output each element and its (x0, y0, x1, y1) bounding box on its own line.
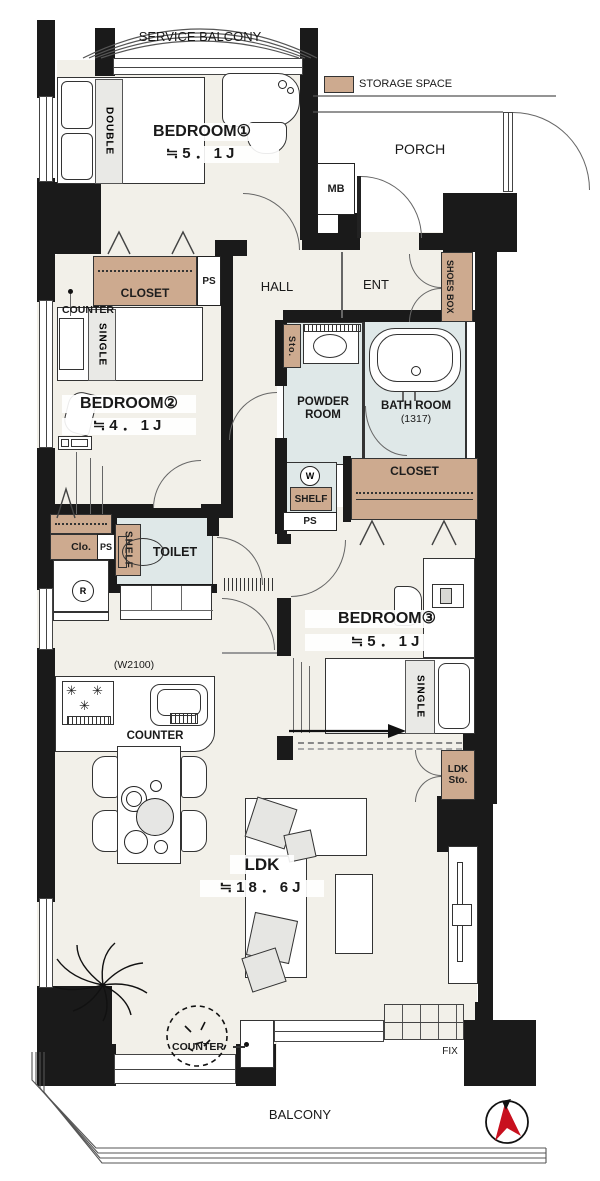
ps-label: PS (202, 276, 215, 287)
wall (95, 28, 115, 76)
curtain-line (293, 658, 294, 733)
dining-chair (92, 810, 118, 852)
clo-label: Clo. (71, 541, 91, 553)
ldk-storage-label: LDKSto. (448, 764, 469, 787)
dining-chair (181, 756, 207, 798)
closet-bedroom1: CLOSET (93, 256, 197, 306)
curtain-line (301, 662, 302, 733)
wall (37, 20, 55, 98)
powder-room-label: POWDERROOM (281, 396, 365, 422)
cup (154, 840, 168, 854)
window (39, 300, 53, 448)
counter-kitchen-label: COUNTER (100, 730, 210, 743)
wall (338, 213, 357, 235)
door-porch (513, 112, 590, 190)
door-entrance (361, 176, 422, 238)
floor-plan: CLOSET SHOES BOX Sto. CLOSET SHELF Clo. … (0, 0, 600, 1181)
double-bed-head: DOUBLE (95, 79, 123, 184)
refrigerator-shelf (53, 612, 109, 621)
dresser-knob (278, 80, 287, 89)
meter-box: MB (317, 163, 355, 215)
bedroom1-size: ≒5．1J (125, 146, 279, 163)
wall (277, 598, 291, 656)
pipe-space-2: PS (283, 512, 337, 531)
double-label: DOUBLE (104, 107, 115, 155)
compass-icon (486, 1099, 528, 1143)
window (39, 96, 53, 182)
hanger-line (102, 466, 103, 514)
bedroom3-size: ≒5．1J (305, 634, 469, 651)
counter-desk-bedroom2 (59, 318, 84, 370)
kitchen-width-label: (W2100) (102, 660, 166, 672)
wall (37, 178, 55, 302)
stove-burner-icon: ✳ (66, 684, 77, 699)
wall (478, 852, 493, 1004)
ps-label: PS (303, 516, 316, 527)
step-hatch (224, 578, 276, 591)
wall (464, 1020, 536, 1086)
wall (437, 796, 493, 852)
porch-boundary-lines (313, 96, 556, 112)
service-balcony-label: SERVICE BALCONY (120, 30, 280, 45)
pipe-space-1: PS (197, 256, 221, 306)
ent-step-line (341, 252, 343, 318)
sliding-partition (298, 742, 462, 744)
wall (277, 534, 291, 544)
bathtub-drain (411, 366, 421, 376)
hanger-line (90, 458, 91, 514)
refrigerator-mark: R (72, 580, 94, 602)
wall (419, 233, 445, 250)
shoes-box: SHOES BOX (441, 252, 473, 322)
bedroom2-name: BEDROOM② (62, 395, 196, 413)
plate (136, 798, 174, 836)
washing-machine: W (300, 466, 320, 486)
kitchen-cabinets (120, 585, 212, 620)
shelf-powder: SHELF (290, 487, 332, 511)
window (114, 1054, 236, 1084)
toilet-label: TOILET (140, 545, 210, 559)
fix-window (384, 1004, 464, 1040)
bed-pillow (438, 663, 470, 729)
shoes-box-label: SHOES BOX (445, 260, 469, 314)
porch-door-frame (503, 112, 513, 192)
window (274, 1020, 384, 1042)
window (39, 898, 53, 988)
counter-bedroom2-label: COUNTER (52, 305, 124, 317)
stove-grill (67, 716, 111, 725)
window (39, 588, 53, 650)
wall (55, 182, 101, 254)
ldk-size: ≒18．6J (200, 880, 324, 897)
ps-label: PS (100, 542, 112, 552)
washbasin-top-hatch (303, 324, 361, 332)
tv-board-item (452, 904, 472, 926)
storage-powder: Sto. (283, 324, 301, 368)
washbasin-bowl (313, 334, 347, 358)
wall (343, 456, 351, 522)
pipe-space-3: PS (97, 534, 115, 560)
dresser-knob (287, 87, 294, 94)
refrigerator-label: R (80, 586, 87, 596)
bed-pillow (61, 133, 93, 180)
single-bed-head: SINGLE (405, 660, 435, 734)
wall (221, 255, 233, 506)
counter-balcony-label: COUNTER (162, 1042, 234, 1054)
closet-bedroom3: CLOSET (351, 458, 478, 520)
wall (107, 508, 219, 518)
wall (302, 233, 360, 250)
bedroom1-name: BEDROOM① (125, 123, 279, 141)
bath-size-label: (1317) (367, 414, 465, 426)
sliding-partition (298, 748, 462, 750)
porch-label: PORCH (378, 142, 462, 158)
fix-label: FIX (432, 1046, 468, 1057)
hall-label: HALL (243, 280, 311, 295)
ent-label: ENT (348, 278, 404, 293)
wall (207, 512, 219, 536)
legend-storage-label: STORAGE SPACE (359, 78, 452, 90)
shelf-label: SHELF (295, 494, 328, 505)
ldk-step-line (222, 652, 277, 654)
low-cabinet-detail (61, 439, 69, 447)
wall (37, 986, 112, 1086)
ldk-storage: LDKSto. (441, 750, 475, 800)
dining-chair (181, 810, 207, 852)
legend-storage-swatch (324, 76, 354, 93)
ldk-name: LDK (230, 855, 294, 874)
cup (124, 830, 148, 854)
cup (150, 780, 162, 792)
mb-label: MB (327, 183, 344, 195)
wall (277, 736, 293, 760)
wall (443, 193, 517, 252)
closet-label: CLOSET (121, 286, 170, 300)
stove-burner-icon: ✳ (79, 699, 90, 714)
curtain-line (309, 666, 310, 733)
clo-hatch (50, 514, 112, 534)
sink-drainer (170, 713, 198, 724)
storage-powder-label: Sto. (287, 336, 297, 357)
closet-label: CLOSET (390, 464, 439, 478)
washer-label: W (306, 471, 315, 481)
bedroom2-size: ≒4．1J (62, 418, 196, 435)
bath-room-label: BATH ROOM (367, 400, 465, 413)
single-label: SINGLE (415, 675, 426, 718)
wall (463, 732, 497, 752)
sink-basin (157, 689, 201, 716)
stove-burner-icon: ✳ (92, 684, 103, 699)
single-label: SINGLE (97, 323, 108, 366)
hanger-line (76, 452, 77, 514)
dining-chair (92, 756, 118, 798)
counter-leader-line (233, 1046, 245, 1048)
low-cabinet-detail (71, 439, 88, 447)
single-bed-head: SINGLE (88, 309, 116, 381)
dresser (222, 73, 300, 127)
toilet-tank (118, 536, 127, 568)
wall (37, 648, 55, 902)
bedroom3-name: BEDROOM③ (305, 610, 469, 628)
coffee-table (335, 874, 373, 954)
bed-pillow (61, 81, 93, 129)
balcony-label: BALCONY (240, 1108, 360, 1123)
desk-item-small (440, 588, 452, 604)
wall (475, 248, 497, 804)
